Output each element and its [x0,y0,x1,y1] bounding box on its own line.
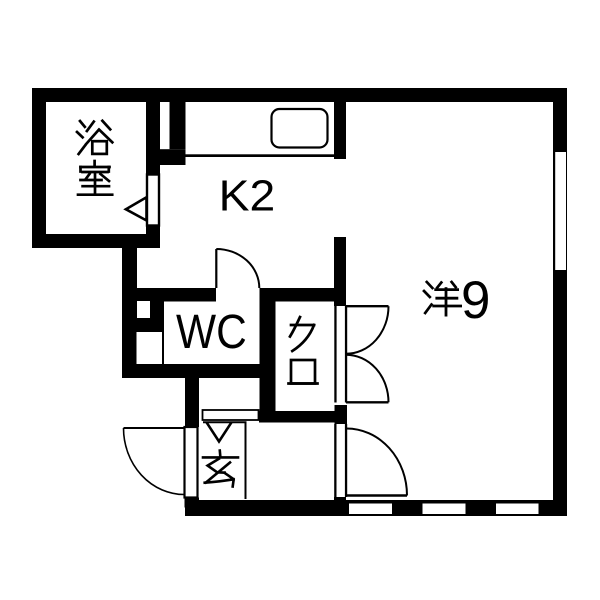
svg-text:9: 9 [461,271,490,330]
svg-text:WC: WC [176,305,247,359]
svg-text:K2: K2 [219,173,276,221]
